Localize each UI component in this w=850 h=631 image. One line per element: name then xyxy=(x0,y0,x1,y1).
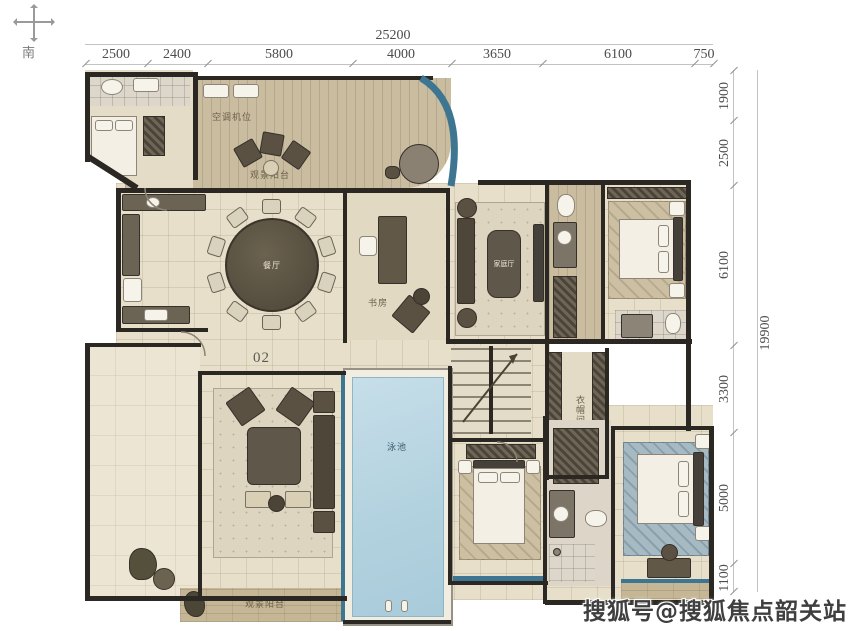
bedroom-bottom-center xyxy=(452,442,545,580)
toilet xyxy=(101,79,123,95)
side-table xyxy=(313,511,335,533)
rock xyxy=(385,166,400,179)
pillow xyxy=(678,491,689,517)
wall xyxy=(543,416,547,604)
dim-seg: 5000 xyxy=(717,473,733,523)
stool xyxy=(285,491,311,508)
pillow xyxy=(478,472,498,483)
nightstand xyxy=(669,201,685,216)
living-room xyxy=(200,375,346,593)
dim-seg: 5800 xyxy=(249,47,309,63)
floor-plan-screenshot: 南 25200 2500 2400 5800 4000 3650 6100 75… xyxy=(0,0,850,631)
watermark: 搜狐号@搜狐焦点韶关站 xyxy=(583,592,847,626)
wall xyxy=(605,348,609,476)
pillow xyxy=(500,472,520,483)
wall xyxy=(478,180,690,185)
dining-chair xyxy=(206,271,226,294)
side-table xyxy=(313,391,335,413)
wall xyxy=(448,366,452,585)
compass: 南 xyxy=(8,2,62,62)
ac-unit xyxy=(233,84,259,98)
cooktop xyxy=(144,309,168,321)
outdoor-chair xyxy=(259,131,284,156)
wall xyxy=(686,180,691,344)
study: 书房 xyxy=(347,192,445,340)
headboard xyxy=(693,452,704,526)
compass-north-arrow-icon xyxy=(30,0,38,8)
wall xyxy=(118,328,208,332)
sofa xyxy=(457,218,475,304)
wall xyxy=(615,426,714,430)
bed xyxy=(637,454,695,524)
dim-seg: 2400 xyxy=(147,47,207,63)
wall xyxy=(448,438,548,442)
sink xyxy=(133,78,159,92)
master-bedroom xyxy=(615,430,711,582)
dining-chair xyxy=(317,235,337,258)
dim-seg: 4000 xyxy=(371,47,431,63)
pillow xyxy=(115,120,133,131)
compass-horizontal-line xyxy=(16,21,52,23)
dim-seg: 2500 xyxy=(717,128,733,178)
window-band xyxy=(621,579,709,583)
bed xyxy=(91,116,137,176)
dining-table-group: 餐厅 xyxy=(205,198,335,328)
bed xyxy=(619,219,675,279)
desk xyxy=(647,558,691,578)
pool-water: 泳池 xyxy=(352,377,444,617)
outdoor-table xyxy=(263,160,279,176)
pillow xyxy=(658,251,669,273)
nightstand xyxy=(669,283,685,298)
toilet xyxy=(557,194,575,217)
ac-unit xyxy=(203,84,229,98)
side-table xyxy=(413,288,430,305)
pillow xyxy=(658,225,669,247)
pouf xyxy=(457,198,477,218)
coffee-table: 家庭厅 xyxy=(487,230,521,298)
stair-stringer xyxy=(489,346,493,434)
cabinet xyxy=(553,276,577,338)
pool-ladder xyxy=(385,600,392,612)
wall xyxy=(448,339,692,344)
dim-top-total: 25200 xyxy=(363,28,423,44)
wall xyxy=(446,188,450,344)
wall xyxy=(85,343,90,601)
floor-plan: 空调机位 生活阳台 观景阳台 xyxy=(85,70,715,600)
pool-glass-wall xyxy=(341,371,345,621)
wall xyxy=(709,426,714,605)
wardrobe xyxy=(607,187,687,199)
dim-seg: 2500 xyxy=(86,47,146,63)
dim-seg: 6100 xyxy=(717,240,733,290)
maid-suite xyxy=(85,70,193,188)
dining-chair xyxy=(317,271,337,294)
nightstand xyxy=(526,460,540,474)
kitchen xyxy=(120,192,208,329)
kitchen-counter xyxy=(122,194,206,211)
dim-seg: 1900 xyxy=(717,71,733,121)
dim-line xyxy=(733,70,734,592)
ac-unit-label: 空调机位 xyxy=(197,110,267,123)
wall xyxy=(193,72,198,180)
shower-head-icon xyxy=(553,548,561,556)
wall xyxy=(611,426,615,604)
wall xyxy=(545,475,609,479)
wall xyxy=(85,596,347,601)
compass-west-arrow-icon xyxy=(9,18,17,26)
chair xyxy=(661,544,678,561)
sink xyxy=(553,506,569,522)
dim-right-total: 19900 xyxy=(758,308,774,358)
wall xyxy=(116,188,450,193)
wall xyxy=(85,343,201,347)
wardrobe xyxy=(466,444,536,459)
desk xyxy=(378,216,407,284)
pool-label: 泳池 xyxy=(361,440,433,453)
dim-tick xyxy=(730,182,738,190)
dining-label: 餐厅 xyxy=(263,260,281,271)
wall xyxy=(85,72,197,77)
compass-vertical-line xyxy=(33,7,35,39)
compass-east-arrow-icon xyxy=(51,18,59,26)
bed xyxy=(473,468,525,544)
dim-tick xyxy=(730,342,738,350)
kitchen-counter-side xyxy=(122,214,140,276)
nightstand xyxy=(458,460,472,474)
wall xyxy=(85,72,90,162)
toilet xyxy=(585,510,607,527)
planter xyxy=(399,144,439,184)
dining-table: 餐厅 xyxy=(225,218,319,312)
dining-chair xyxy=(262,199,281,214)
pillow xyxy=(678,461,689,487)
dim-tick xyxy=(730,429,738,437)
plant xyxy=(153,568,175,590)
wall xyxy=(198,371,202,601)
sofa xyxy=(313,415,335,509)
vanity-counter xyxy=(553,222,577,268)
wall xyxy=(448,581,548,585)
pouf xyxy=(457,308,477,328)
shower xyxy=(621,314,653,338)
stool xyxy=(245,491,271,508)
compass-south-label: 南 xyxy=(22,42,35,61)
family-room-label: 家庭厅 xyxy=(491,259,517,269)
pillow xyxy=(95,120,113,131)
dining-chair xyxy=(262,315,281,330)
headboard xyxy=(673,217,683,281)
wall xyxy=(686,339,691,431)
wall xyxy=(343,188,347,343)
dim-line xyxy=(85,64,713,65)
desk-chair xyxy=(359,236,377,256)
family-room: 家庭厅 xyxy=(453,196,545,341)
study-label: 书房 xyxy=(361,296,395,309)
pouf xyxy=(268,495,285,512)
wall xyxy=(601,180,605,344)
tv-cabinet xyxy=(533,224,544,302)
wall xyxy=(343,620,451,624)
dining-chair xyxy=(206,235,226,258)
sink xyxy=(557,230,572,245)
pool-deck: 泳池 xyxy=(343,368,453,626)
fridge xyxy=(123,278,142,302)
wall xyxy=(198,371,346,375)
wall xyxy=(193,76,433,80)
bedroom-top-right xyxy=(603,185,689,307)
bathroom-middle xyxy=(547,420,611,586)
kitchen-sink xyxy=(146,197,160,208)
unit-number: 02 xyxy=(253,350,270,367)
coffee-table xyxy=(247,427,301,485)
toilet xyxy=(665,313,681,334)
dim-seg: 3650 xyxy=(467,47,527,63)
wall xyxy=(116,188,121,332)
dim-line xyxy=(85,44,713,45)
dim-seg: 750 xyxy=(674,47,734,63)
pool-ladder xyxy=(401,600,408,612)
dim-seg: 6100 xyxy=(588,47,648,63)
wardrobe xyxy=(143,116,165,156)
dim-seg: 3300 xyxy=(717,364,733,414)
